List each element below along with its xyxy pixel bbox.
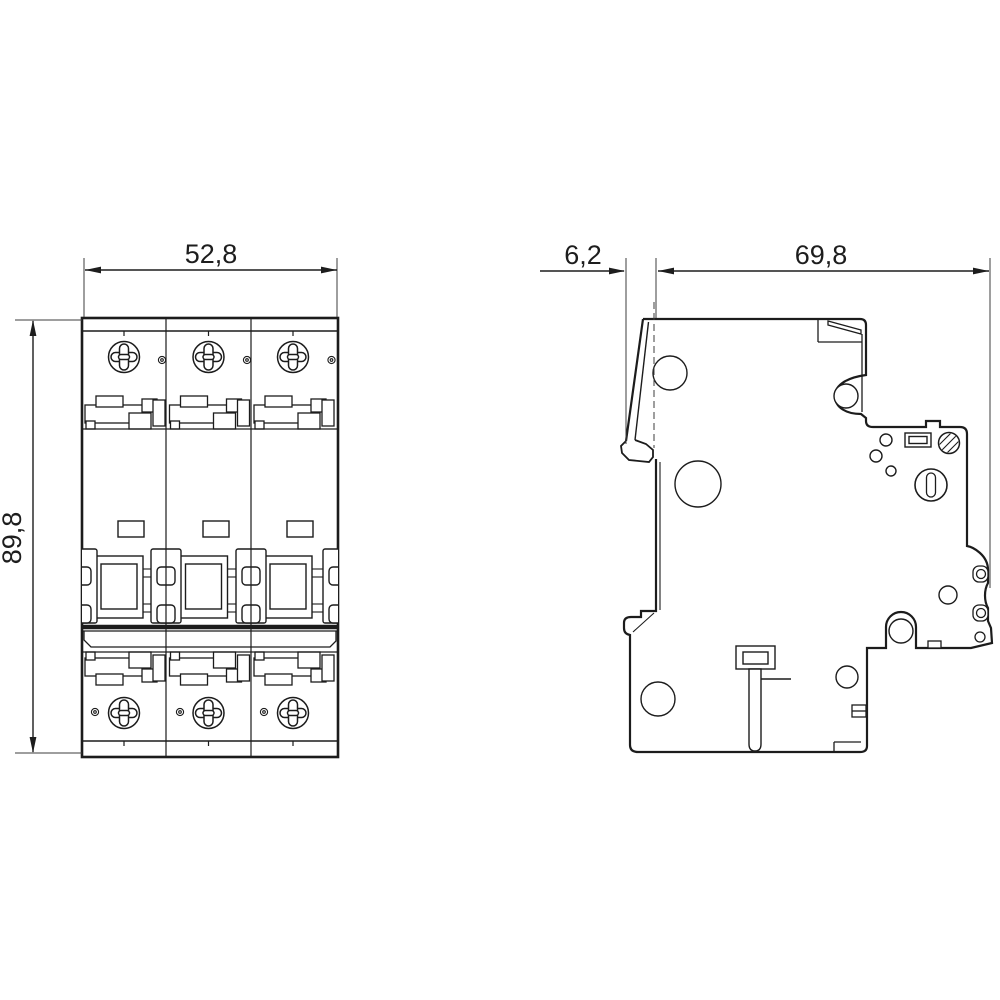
- front-view: [67, 318, 353, 757]
- dimension-drawing-canvas: 52,8 89,8 6,2 69,8: [0, 0, 1000, 1000]
- side-din-clip-slider: [736, 646, 791, 751]
- side-depth-label: 69,8: [795, 240, 848, 270]
- dimension-front-height: 89,8: [0, 320, 82, 753]
- side-interior-circles: [641, 356, 957, 716]
- dimension-front-width: 52,8: [84, 239, 337, 317]
- side-knurled-screw: [930, 424, 968, 462]
- side-misc-details: [834, 641, 941, 752]
- side-view: [621, 302, 992, 752]
- front-height-label: 89,8: [0, 512, 27, 565]
- dimension-side-depth: 69,8: [658, 240, 990, 588]
- side-window: [905, 433, 931, 447]
- drawing-svg: 52,8 89,8 6,2 69,8: [0, 0, 1000, 1000]
- front-width-label: 52,8: [185, 239, 238, 269]
- side-offset-label: 6,2: [564, 240, 602, 270]
- front-terminal-blocks: [67, 549, 353, 623]
- side-slotted-screw: [915, 469, 947, 501]
